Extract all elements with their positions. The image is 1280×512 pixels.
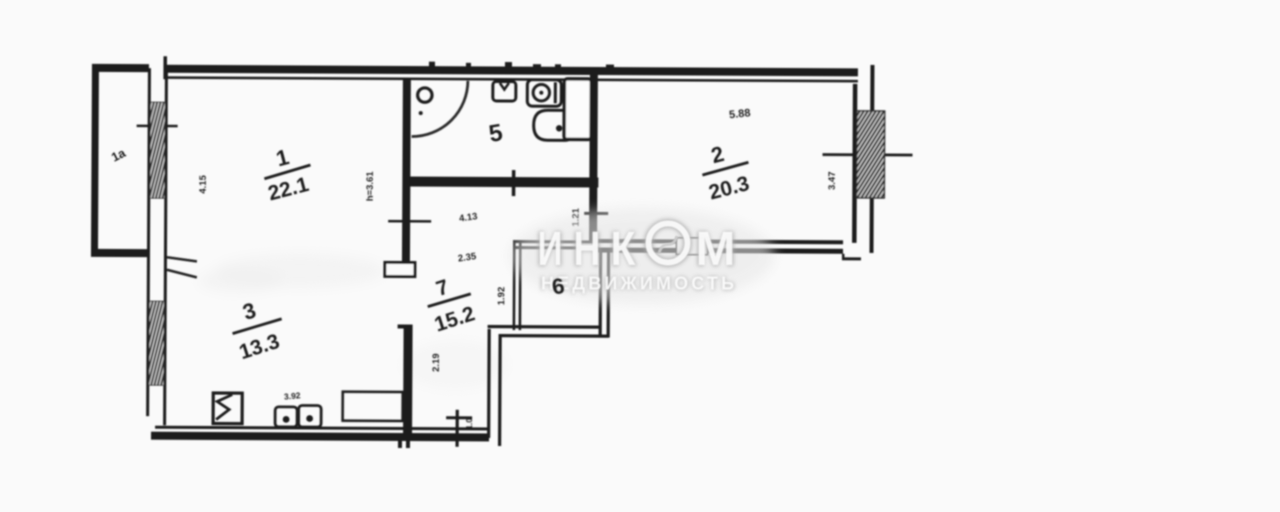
svg-text:4.15: 4.15 [198,174,209,193]
svg-text:3.92: 3.92 [284,390,302,401]
svg-text:h=3.61: h=3.61 [365,171,376,202]
svg-text:1.0: 1.0 [465,418,474,430]
svg-text:3.47: 3.47 [827,171,838,190]
svg-text:К: К [611,223,637,276]
svg-text:5.88: 5.88 [729,107,752,121]
svg-text:М: М [696,223,736,276]
svg-text:Н: Н [574,223,601,276]
svg-text:2.19: 2.19 [431,353,442,372]
svg-text:И: И [538,223,563,276]
svg-text:НЕДВИЖИМОСТЬ: НЕДВИЖИМОСТЬ [541,274,736,294]
svg-text:1.92: 1.92 [496,287,507,306]
